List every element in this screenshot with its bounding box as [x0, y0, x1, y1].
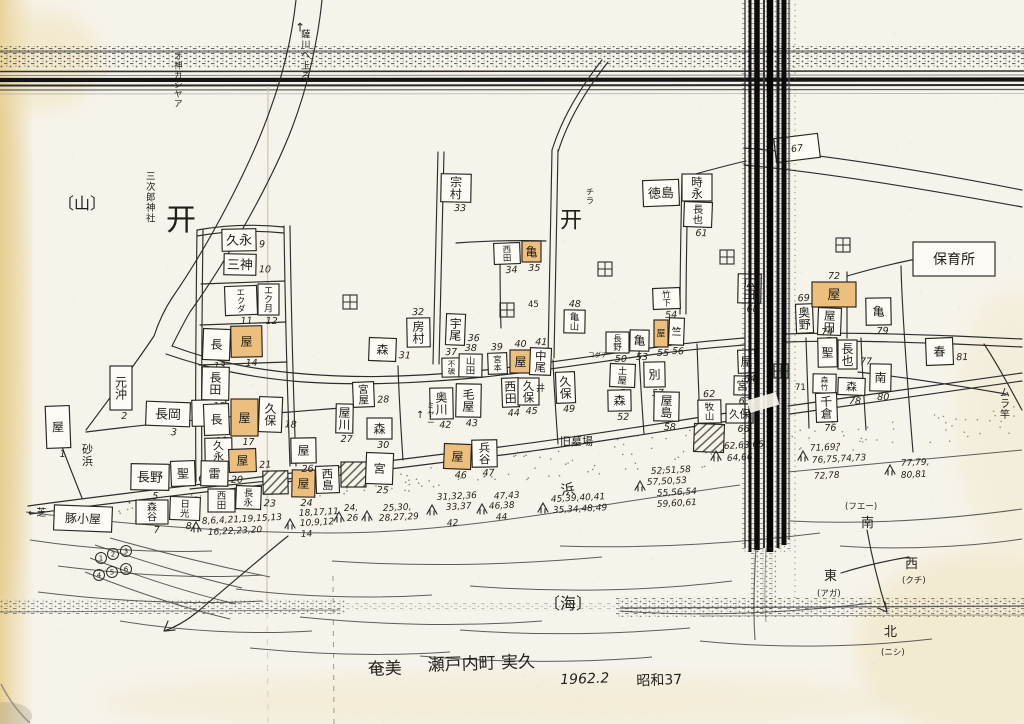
house-number-group: 26: [347, 513, 359, 524]
house-number-group: 77,79,: [901, 458, 930, 469]
map-label: オ神ガシヤア: [174, 52, 183, 110]
compass-east-label: 東: [824, 568, 837, 584]
svg-text:67: 67: [790, 143, 803, 155]
svg-text:38: 38: [465, 343, 477, 354]
map-label: 开: [166, 203, 196, 238]
svg-text:屋島: 屋島: [660, 394, 673, 420]
svg-text:7: 7: [154, 525, 160, 536]
svg-text:屋: 屋: [240, 335, 252, 349]
svg-text:53: 53: [636, 352, 648, 363]
svg-text:雷: 雷: [208, 467, 220, 481]
svg-text:春: 春: [933, 345, 946, 359]
map-label: ↑: [416, 410, 424, 421]
svg-text:久保: 久保: [523, 379, 535, 405]
caption-date: 1962.2: [560, 670, 610, 688]
svg-text:41: 41: [535, 337, 548, 348]
svg-text:竹下: 竹下: [662, 289, 672, 309]
svg-text:3: 3: [124, 548, 128, 556]
map-label: 砂浜: [82, 443, 93, 468]
caption-era: 昭和37: [636, 672, 682, 690]
svg-text:69: 69: [797, 293, 810, 304]
svg-text:長也: 長也: [841, 342, 853, 368]
svg-text:61: 61: [695, 228, 708, 239]
svg-text:豚小屋: 豚小屋: [65, 511, 102, 526]
svg-text:時永: 時永: [691, 175, 703, 201]
map-label: コダチ: [588, 350, 608, 359]
svg-text:9: 9: [259, 239, 265, 250]
svg-text:48: 48: [569, 299, 581, 310]
compass-south-label: 南: [861, 515, 874, 531]
building-hatched: [693, 423, 724, 452]
house-number-group: 71,69?: [810, 442, 841, 454]
svg-text:屋: 屋: [52, 420, 65, 434]
svg-text:62: 62: [703, 389, 715, 400]
svg-text:宮本: 宮本: [493, 354, 503, 374]
map-label: 薩川ヘ上る: [301, 29, 311, 83]
svg-text:森: 森: [376, 342, 389, 357]
village-map-canvas: 屋1元沖2長岡3安4長野5聖6森谷7日光8久永9三神10エクダ11エク月12長1…: [0, 0, 1024, 724]
building-hatched: [263, 471, 288, 494]
house-number-group: 10,9,12: [300, 517, 335, 529]
compass-west-label: 西: [905, 557, 918, 572]
svg-text:別: 別: [648, 368, 660, 382]
svg-text:中尾: 中尾: [534, 349, 546, 375]
building-hatched: [341, 462, 366, 487]
svg-text:39: 39: [491, 342, 504, 353]
svg-text:亀: 亀: [633, 334, 645, 348]
svg-text:1: 1: [59, 449, 65, 460]
svg-text:74: 74: [821, 327, 833, 338]
svg-text:屋: 屋: [297, 477, 309, 491]
svg-text:長野: 長野: [613, 334, 622, 353]
svg-text:久保: 久保: [264, 402, 277, 428]
svg-text:55: 55: [657, 348, 669, 359]
svg-text:屋: 屋: [238, 411, 250, 425]
scan-artifact-right-band: [741, 0, 791, 640]
svg-text:42: 42: [439, 420, 451, 431]
svg-text:西島: 西島: [321, 467, 333, 493]
svg-text:11: 11: [240, 316, 253, 327]
svg-text:2: 2: [121, 411, 127, 422]
svg-text:46: 46: [455, 470, 468, 481]
svg-text:44: 44: [508, 408, 521, 419]
house-number-group: 57,50,53: [647, 476, 688, 488]
svg-text:房村: 房村: [412, 319, 425, 346]
svg-text:長野: 長野: [137, 470, 163, 485]
svg-text:日光: 日光: [180, 499, 191, 520]
svg-text:宗村: 宗村: [450, 174, 463, 201]
svg-text:森竹: 森竹: [821, 374, 829, 392]
svg-text:34: 34: [505, 265, 518, 276]
scanned-hand-drawn-village-map: 屋1元沖2長岡3安4長野5聖6森谷7日光8久永9三神10エクダ11エク月12長1…: [0, 0, 1024, 724]
svg-text:宇尾: 宇尾: [449, 317, 462, 343]
svg-text:奥野: 奥野: [798, 306, 811, 332]
svg-text:エク月: エク月: [264, 287, 273, 315]
svg-text:森: 森: [373, 421, 385, 436]
map-label: ムラ竿: [1000, 387, 1010, 421]
svg-text:久永: 久永: [226, 233, 252, 248]
svg-text:聖: 聖: [821, 346, 833, 360]
svg-text:屋川: 屋川: [338, 406, 351, 432]
svg-text:亀: 亀: [525, 245, 537, 259]
svg-text:27: 27: [340, 434, 352, 445]
svg-text:32: 32: [412, 307, 424, 318]
svg-text:26: 26: [301, 464, 313, 475]
svg-text:23: 23: [264, 498, 277, 509]
svg-text:2: 2: [111, 551, 115, 559]
svg-text:1: 1: [99, 555, 103, 563]
svg-text:17: 17: [243, 437, 255, 448]
map-label: 旧墓場: [560, 435, 593, 448]
house-number-group: 72,78: [814, 471, 841, 482]
svg-text:80: 80: [877, 392, 889, 403]
svg-text:28: 28: [377, 394, 390, 405]
svg-text:45: 45: [526, 406, 538, 417]
svg-text:5: 5: [110, 569, 114, 577]
svg-text:三神: 三神: [227, 258, 253, 273]
svg-text:聖: 聖: [177, 467, 190, 481]
house-number-group: 80,81: [901, 470, 927, 481]
svg-text:南: 南: [874, 370, 886, 385]
building-西島: 西島: [315, 466, 339, 494]
svg-text:47: 47: [482, 468, 494, 479]
building-55: 屋55: [654, 320, 669, 359]
svg-text:山田: 山田: [466, 356, 476, 377]
house-number-group: 55,56,54: [657, 487, 698, 499]
svg-text:亀: 亀: [872, 305, 884, 319]
compass-north-label: 北: [884, 625, 897, 640]
house-number-group: 44: [496, 512, 508, 523]
svg-text:21: 21: [259, 459, 272, 470]
svg-text:49: 49: [563, 404, 576, 415]
svg-text:元沖: 元沖: [115, 375, 127, 401]
svg-text:78: 78: [849, 396, 862, 407]
svg-text:長田: 長田: [209, 371, 222, 397]
compass-west-dialect-label: (クチ): [902, 576, 926, 586]
house-number-group: 59,60,61: [657, 498, 698, 510]
svg-text:43: 43: [466, 418, 478, 429]
house-number-group: 14: [301, 529, 313, 540]
svg-text:30: 30: [377, 440, 389, 451]
svg-text:土屋: 土屋: [617, 365, 628, 387]
svg-text:56: 56: [672, 346, 685, 357]
svg-text:長: 長: [210, 413, 223, 427]
svg-text:20: 20: [231, 475, 243, 486]
svg-text:14: 14: [245, 358, 257, 369]
svg-text:18: 18: [284, 419, 297, 430]
svg-text:兵谷: 兵谷: [479, 441, 491, 467]
svg-text:宮屋: 宮屋: [358, 383, 369, 407]
svg-text:久永: 久永: [213, 439, 224, 463]
svg-text:12: 12: [266, 316, 278, 327]
svg-text:徳島: 徳島: [648, 186, 675, 202]
house-number-group: 24,: [344, 503, 359, 514]
svg-text:屋: 屋: [297, 444, 309, 458]
svg-text:長: 長: [210, 338, 223, 352]
map-label: 45: [528, 300, 539, 310]
svg-text:81: 81: [956, 352, 969, 363]
svg-text:エクダ: エクダ: [236, 287, 245, 314]
svg-text:屋: 屋: [451, 450, 464, 464]
svg-text:不破: 不破: [448, 359, 456, 376]
compass-south-dialect-label: (フエー): [845, 502, 877, 512]
svg-text:52: 52: [617, 412, 629, 423]
caption-region: 奄美: [367, 659, 402, 680]
svg-text:3: 3: [171, 427, 177, 438]
svg-text:西田: 西田: [504, 380, 517, 406]
svg-text:牧山: 牧山: [705, 401, 715, 423]
svg-text:森: 森: [613, 393, 625, 408]
map-label: 井: [536, 382, 545, 394]
caption-town: 瀬戸内町 実久: [427, 652, 535, 676]
map-label: 开: [560, 209, 582, 234]
svg-text:屋: 屋: [236, 454, 249, 468]
svg-text:長也: 長也: [692, 204, 704, 227]
svg-text:35: 35: [528, 263, 540, 274]
house-number-group: 33,37: [446, 502, 473, 513]
map-label: ミヤー: [427, 401, 435, 427]
svg-text:久保: 久保: [559, 375, 572, 401]
svg-text:79: 79: [876, 326, 888, 337]
svg-text:4: 4: [97, 572, 102, 580]
svg-text:37: 37: [445, 347, 457, 358]
svg-text:58: 58: [664, 422, 676, 433]
svg-text:25: 25: [376, 485, 389, 496]
house-number-group: 42: [447, 518, 459, 529]
svg-text:76: 76: [824, 423, 837, 434]
svg-text:毛屋: 毛屋: [462, 388, 475, 414]
svg-text:保育所: 保育所: [933, 252, 975, 268]
svg-text:72: 72: [828, 271, 840, 282]
svg-text:西田: 西田: [217, 491, 227, 512]
svg-text:森谷: 森谷: [147, 501, 157, 524]
map-label: ←芝: [28, 506, 46, 519]
map-label: 71: [795, 383, 806, 393]
svg-text:千倉: 千倉: [820, 395, 833, 421]
building-保育所: 保育所: [913, 242, 995, 276]
svg-text:宮: 宮: [373, 461, 386, 476]
map-label: チラ: [586, 187, 594, 205]
svg-text:竺: 竺: [671, 325, 681, 338]
svg-text:奥川: 奥川: [435, 391, 448, 417]
svg-text:40: 40: [514, 339, 526, 350]
svg-text:長永: 長永: [243, 488, 254, 509]
svg-text:6: 6: [124, 566, 129, 574]
building-豚小屋: 豚小屋: [54, 505, 113, 532]
svg-text:31: 31: [399, 350, 412, 361]
svg-text:森: 森: [846, 379, 858, 393]
house-number-group: 46,38: [489, 501, 516, 512]
svg-text:屋: 屋: [514, 355, 526, 369]
svg-text:亀山: 亀山: [570, 311, 580, 333]
svg-text:西田: 西田: [502, 245, 511, 264]
svg-text:33: 33: [454, 203, 466, 214]
compass-north-dialect-label: (ニシ): [881, 648, 905, 658]
svg-text:10: 10: [259, 264, 271, 275]
svg-text:屋: 屋: [656, 329, 665, 340]
map-label: 三次郎神社: [146, 172, 156, 225]
house-number-group: 28,27,29: [379, 512, 420, 524]
svg-text:長岡: 長岡: [155, 407, 182, 423]
svg-text:屋: 屋: [827, 288, 840, 303]
map-label: 〔山〕: [58, 194, 106, 213]
